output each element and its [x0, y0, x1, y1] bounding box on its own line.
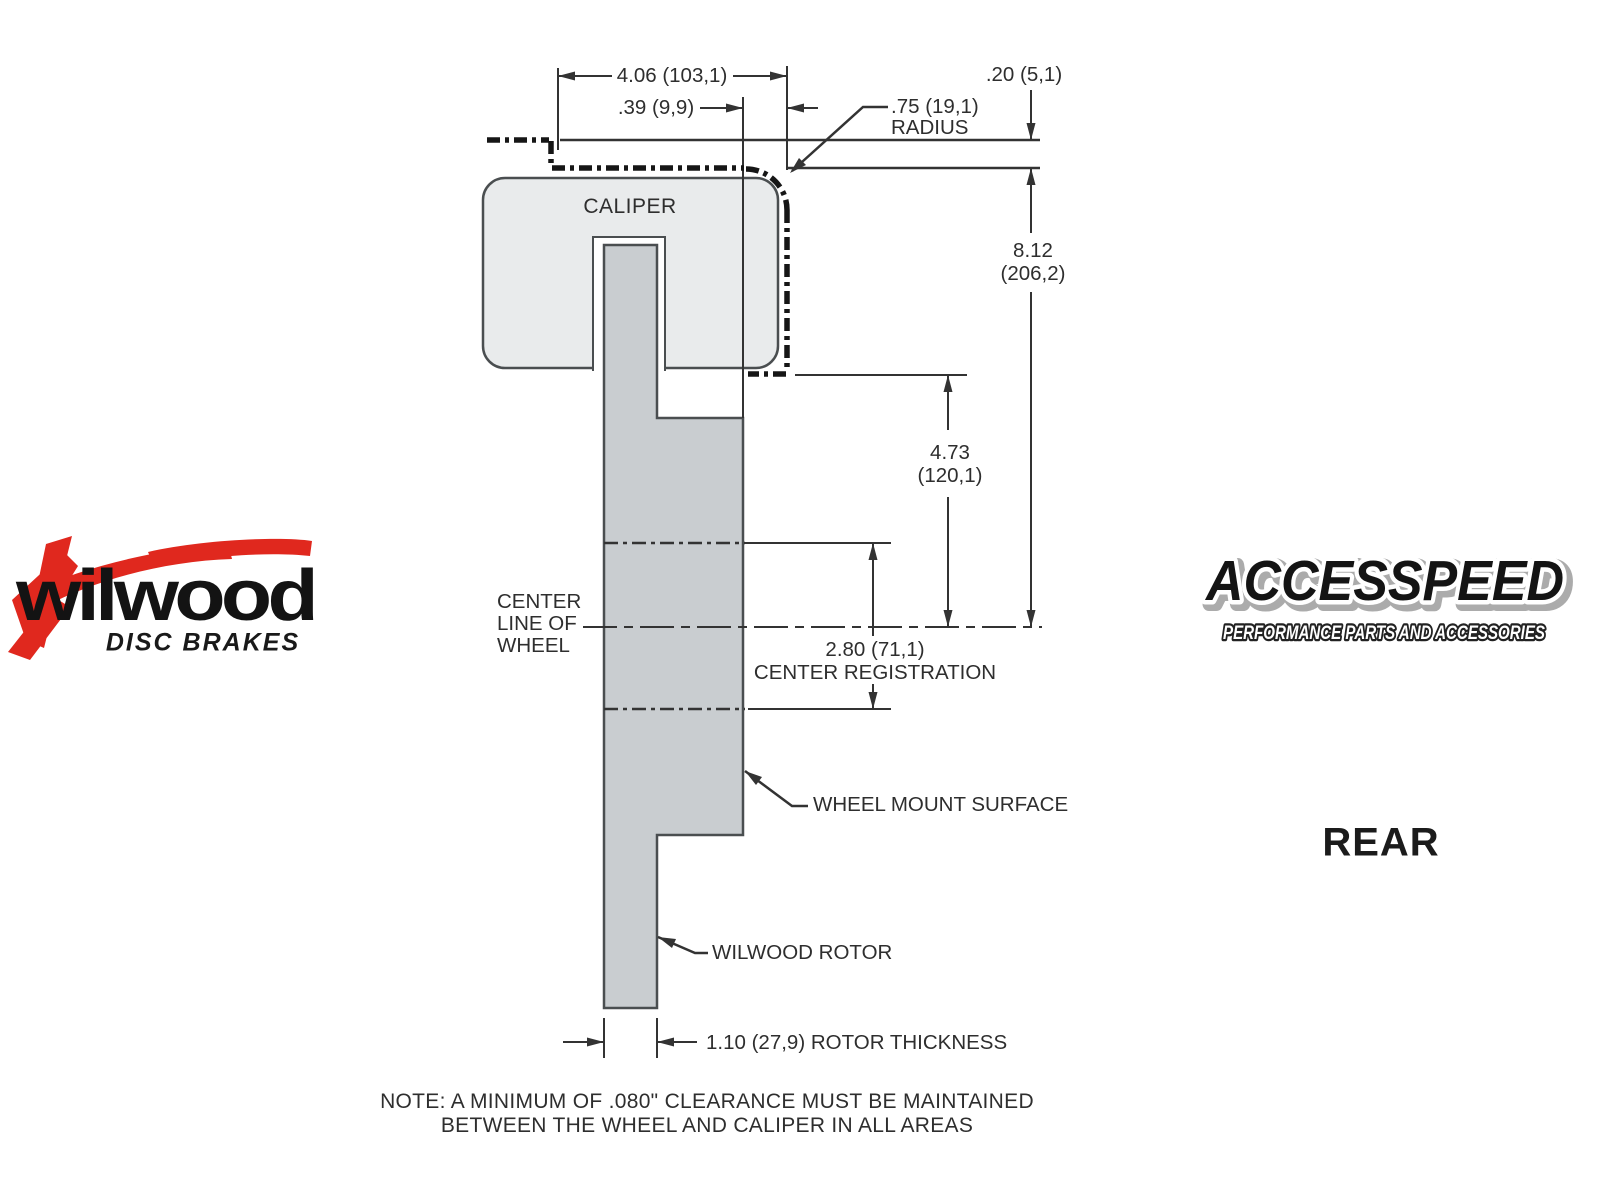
rotor-label: WILWOOD ROTOR	[712, 941, 892, 965]
dim-height-in: 8.12	[1001, 239, 1066, 262]
view-label-rear: REAR	[1322, 821, 1439, 866]
arrowhead	[587, 1038, 604, 1047]
clearance-note-line-2: BETWEEN THE WHEEL AND CALIPER IN ALL ARE…	[380, 1114, 1034, 1138]
wheel-mount-label: WHEEL MOUNT SURFACE	[813, 793, 1068, 817]
dim-offset-text: .39 (9,9)	[618, 96, 694, 120]
dim-height-mm: (206,2)	[1001, 262, 1066, 285]
dim-registration-value: 2.80 (71,1)	[754, 638, 996, 661]
dim-radius-word: RADIUS	[891, 117, 979, 138]
dim-registration-text: 2.80 (71,1) CENTER REGISTRATION	[754, 638, 996, 684]
arrowhead	[558, 72, 575, 81]
dim-radius-value: .75 (19,1)	[891, 96, 979, 117]
center-line-label: CENTER LINE OF WHEEL	[497, 591, 581, 657]
arrowhead	[726, 104, 743, 113]
diagram-canvas: wilwood ACCESSPEED ACCESSPEED ACCESSPEED…	[0, 0, 1600, 1200]
caliper-label: CALIPER	[583, 195, 676, 219]
clearance-note: NOTE: A MINIMUM OF .080" CLEARANCE MUST …	[380, 1090, 1034, 1138]
arrowhead	[657, 1038, 674, 1047]
arrowhead	[1027, 610, 1036, 627]
dim-height-text: 8.12 (206,2)	[1001, 239, 1066, 285]
arrowhead	[770, 72, 787, 81]
arrowhead	[944, 610, 953, 627]
accesspeed-tagline-text: PERFORMANCE PARTS AND ACCESSORIES	[1223, 623, 1545, 644]
dim-mount-text: 4.73 (120,1)	[918, 441, 983, 487]
arrowhead	[869, 543, 878, 560]
brake-diagram-page: wilwood ACCESSPEED ACCESSPEED ACCESSPEED…	[0, 0, 1600, 1200]
dim-mount-mm: (120,1)	[918, 464, 983, 487]
clearance-note-line-1: NOTE: A MINIMUM OF .080" CLEARANCE MUST …	[380, 1090, 1034, 1114]
arrowhead	[944, 375, 953, 392]
arrowhead	[869, 692, 878, 709]
center-line-label-3: WHEEL	[497, 635, 581, 657]
accesspeed-logo-text: ACCESSPEED	[1204, 549, 1564, 613]
arrowhead	[1027, 168, 1036, 185]
accesspeed-logo: ACCESSPEED ACCESSPEED ACCESSPEED PERFORM…	[1204, 549, 1568, 644]
arrowhead	[658, 937, 676, 948]
dim-registration-label: CENTER REGISTRATION	[754, 661, 996, 684]
dim-rotor-thickness-text: 1.10 (27,9) ROTOR THICKNESS	[706, 1031, 1007, 1055]
dim-clearance-text: .20 (5,1)	[986, 63, 1062, 87]
arrowhead	[787, 104, 804, 113]
dim-radius-text: .75 (19,1) RADIUS	[891, 96, 979, 138]
wilwood-tagline: DISC BRAKES	[106, 629, 300, 658]
center-line-label-1: CENTER	[497, 591, 581, 613]
arrowhead	[1027, 123, 1036, 140]
dim-mount-in: 4.73	[918, 441, 983, 464]
wilwood-logo-text: wilwood	[15, 556, 314, 636]
dim-width-text: 4.06 (103,1)	[617, 64, 728, 88]
center-line-label-2: LINE OF	[497, 613, 581, 635]
